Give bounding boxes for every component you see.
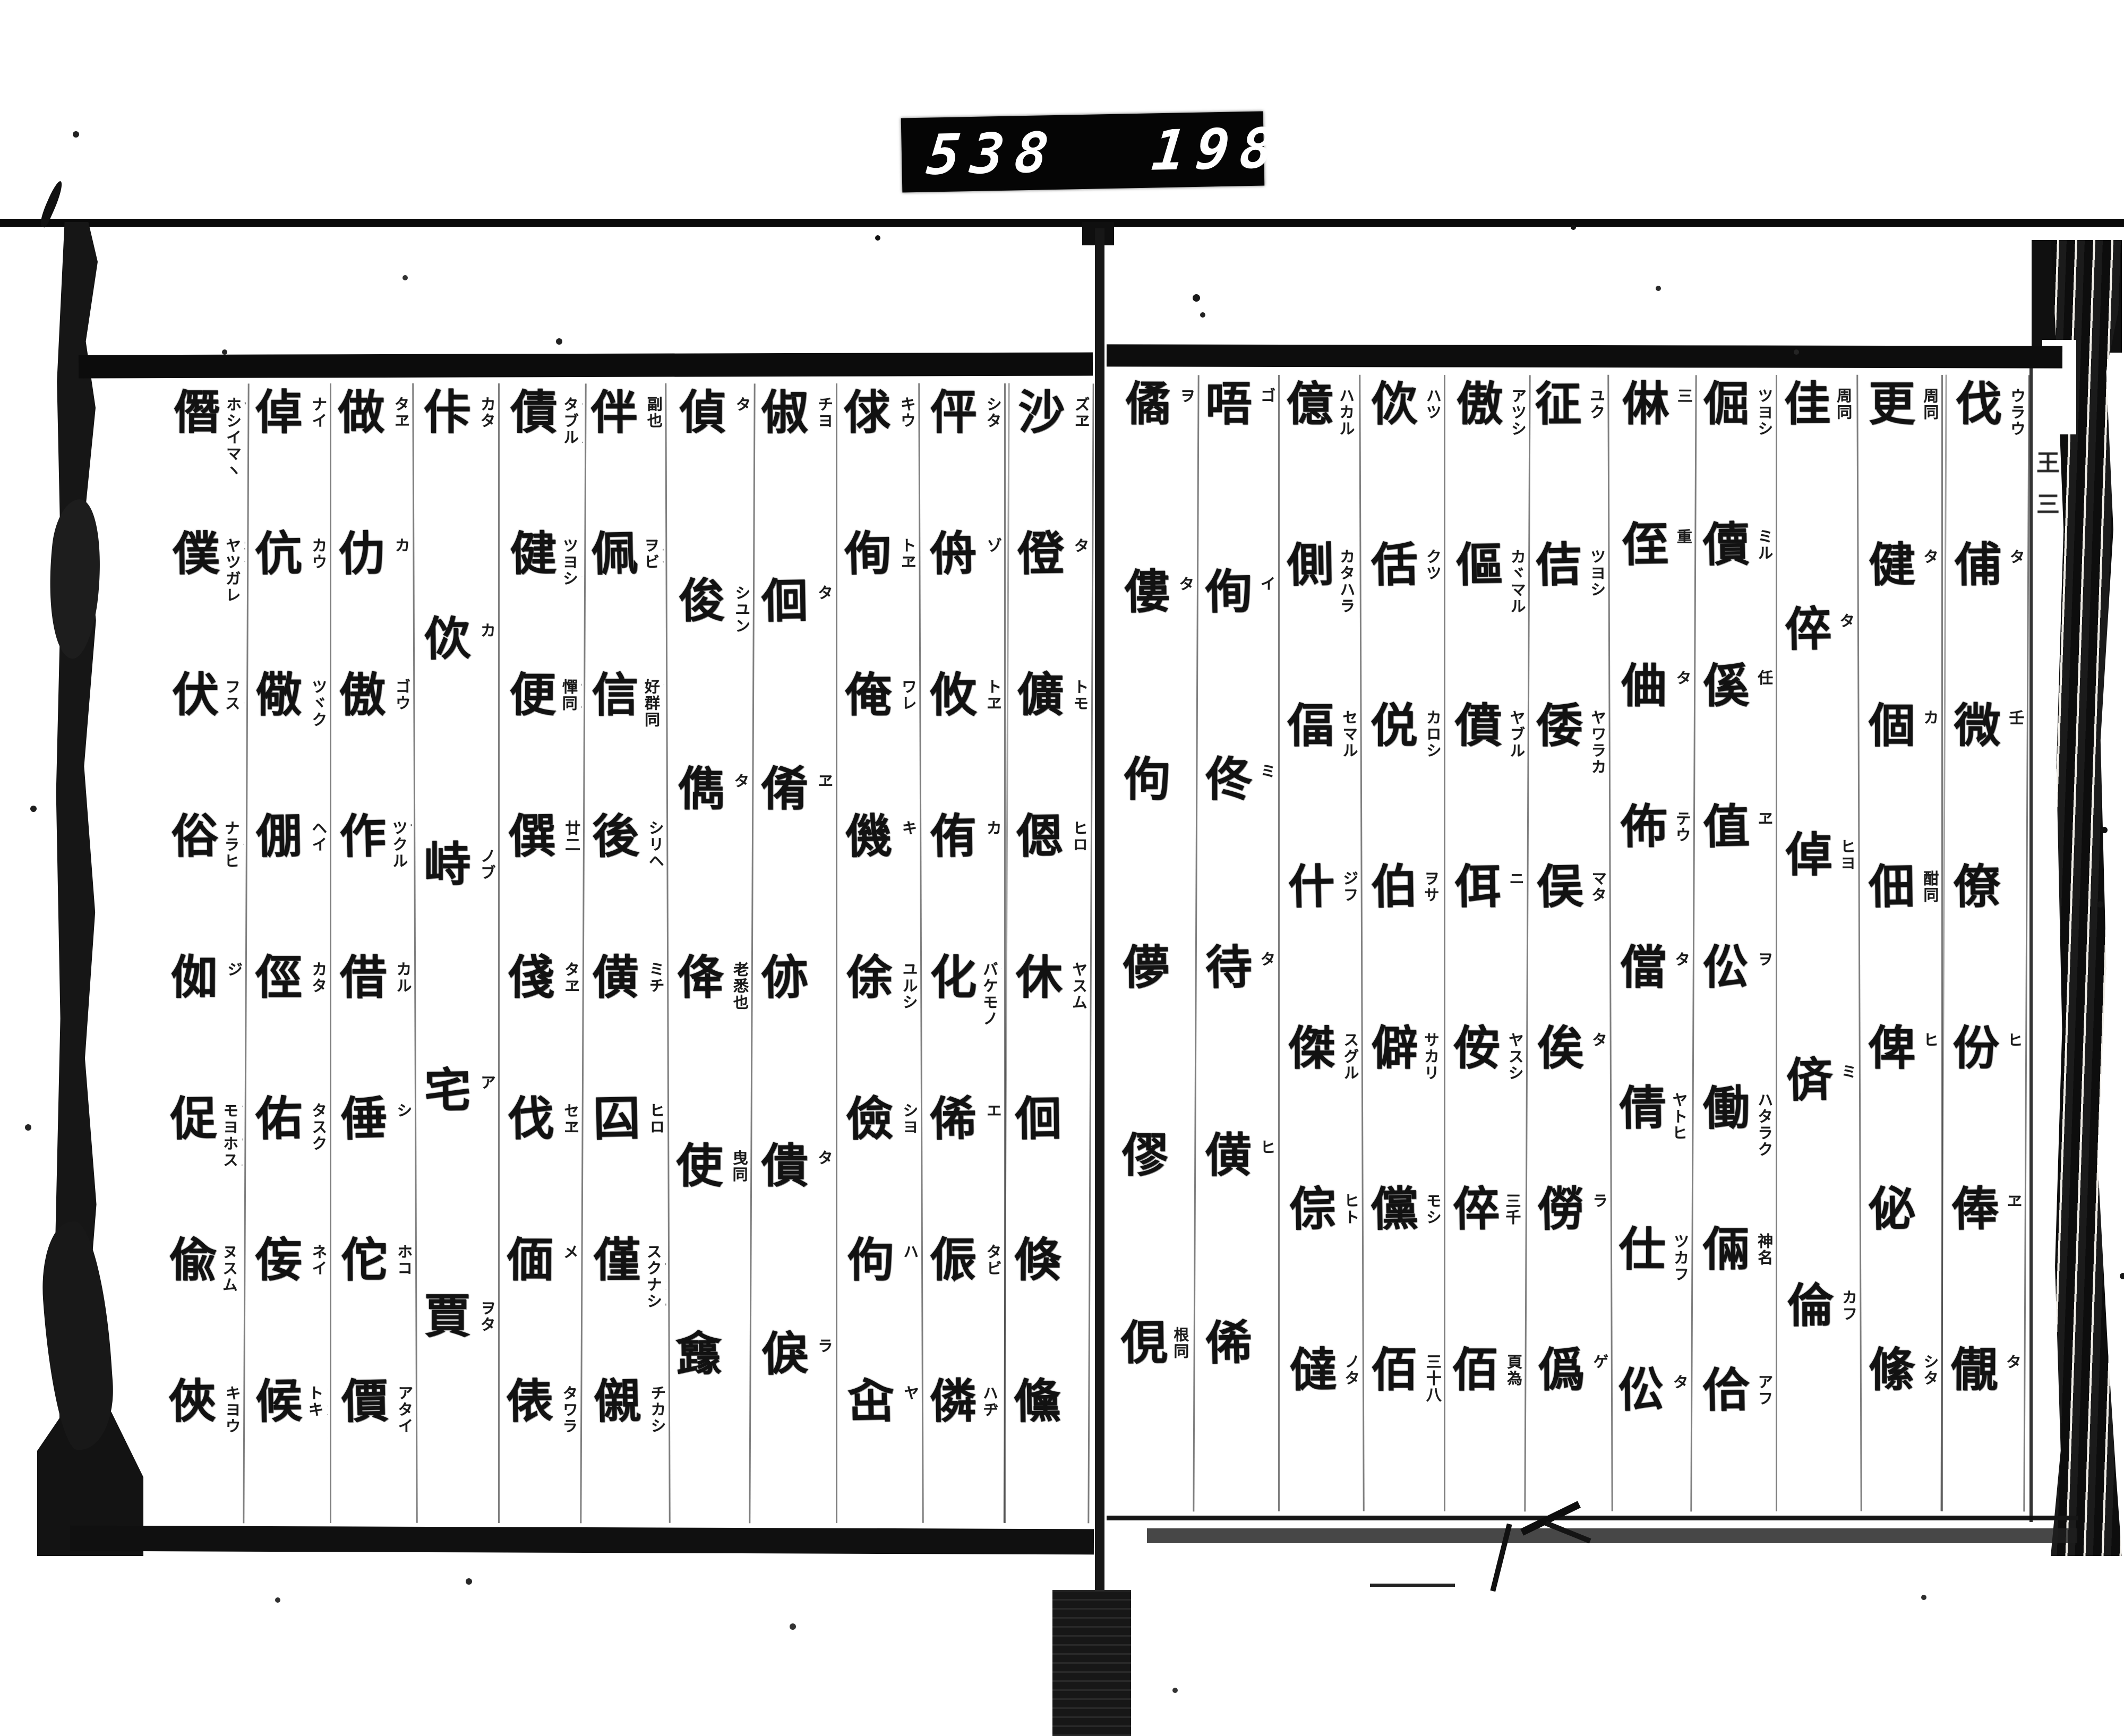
entry-readings: エ [983,1094,1002,1119]
entry-kanji: 佗 [341,1236,388,1284]
right-text-block-border [2029,366,2033,1522]
entry-readings: ヒロ [647,1094,665,1135]
entry-reading: ウラウ [2009,388,2025,437]
entry-kanji: 伻 [930,389,977,437]
dictionary-entry: 儣トモ [1011,670,1089,812]
dictionary-column: 僭センホシイマヽ僕ボクヤツガレ伏フクフス俗ゾクナラヒ侞ジ促ソクツヾマルモヨホス偸… [160,383,249,1524]
entry-reading: タ [816,585,832,601]
entry-reading: シン [661,679,664,728]
dictionary-entry: 侒ヤスシ [1448,1023,1524,1184]
dictionary-entry: 侜ゾ [924,529,1002,670]
dictionary-entry: 倬ナイ [250,388,328,529]
entry-readings: 神名 [1755,1225,1774,1266]
entry-readings: トウヌスム [219,1235,242,1293]
dictionary-entry: 佗ホコ [336,1235,414,1377]
entry-reading: ヒト [1343,1192,1359,1225]
entry-reading: ハイ [661,537,664,570]
entry-reading: ユルシ [901,961,917,1011]
entry-kanji: 債 [511,389,558,437]
microfilm-counter: 538 198. [901,111,1265,192]
entry-reading: カ [1922,709,1938,726]
entry-reading: アツシ [1510,388,1526,437]
entry-readings: ヘイ [309,811,328,853]
entry-kanji: 㑋 [1621,662,1667,709]
entry-reading: 副也 [646,396,662,429]
entry-kanji: 便 [509,671,556,719]
entry-reading: 任 [1757,670,1772,686]
dictionary-entry: 佳子サ周同 [1778,379,1855,605]
entry-readings: シタ [1921,1345,1939,1387]
entry-readings: キヨウ [222,1376,242,1434]
dictionary-entry: 儅タ [1614,943,1690,1084]
right-page-top-border [1107,344,2062,368]
entry-readings: カ [1921,701,1939,726]
entry-readings: ヤ [901,1376,919,1401]
dust-specks [0,0,3,3]
entry-readings: タビ [983,1235,1002,1277]
entry-readings: ヲタ [477,1292,496,1333]
entry-reading: キヨウ [224,1385,241,1434]
entry-kanji: 倆 [1703,1226,1750,1273]
entry-reading: コヽ [1190,1327,1192,1360]
entry-reading: トヱ [985,679,1001,712]
dictionary-entry: 做タヱ [332,388,410,529]
entry-reading: ツヨシ [561,537,578,587]
entry-reading: チヨ [816,396,832,429]
dictionary-entry: 僜タ [1012,529,1090,671]
entry-kanji: 僨 [1455,702,1502,750]
entry-reading: キ [900,820,916,836]
entry-kanji: 偪 [1288,702,1334,750]
bottom-center-tab [1052,1590,1131,1736]
stray-line-fragment [1370,1584,1455,1587]
dictionary-entry: 儭チカシ [589,1376,667,1518]
entry-readings: カウ [309,529,328,570]
entry-reading: ツヨシ [1589,549,1605,598]
entry-readings: 副也 [644,388,663,429]
entry-kanji: 俵 [506,1377,553,1425]
entry-readings: キウ [897,388,916,429]
dictionary-entry: 𫣆ヒロ [1010,811,1089,953]
dictionary-column: 佳子サ周同倅タ倬ヒヨ㑪ミ倫カフ [1775,375,1862,1512]
entry-reading: 子サ [1853,388,1855,421]
entry-readings: シタ [983,388,1002,429]
entry-readings: ヱ [815,764,833,789]
dictionary-entry: 働ハタラク [1698,1083,1774,1224]
entry-reading: アフ [1757,1374,1772,1407]
entry-readings: ハタラク [1755,1083,1774,1158]
entry-kanji: 唔 [1205,380,1252,428]
entry-readings: タヱ [562,953,580,994]
entry-kanji: 僟 [845,812,893,861]
entry-readings: コワシツヨシ [560,529,582,587]
left-page-columns: 沙ズヱ僜タ儣トモ𫣆ヒロ休ヤスム佪倏儵伻シタ侜ゾ攸トヱ侑カ化クワバケモノ俙エ侲タビ… [162,383,1092,1523]
entry-reading: ミ [1259,763,1275,780]
entry-kanji: 伏 [172,671,219,719]
dictionary-entry: 俶チヨ [756,388,834,576]
entry-readings: 周同 [1921,379,1939,421]
entry-readings: ラ [815,1329,833,1354]
entry-readings: ヱ [2004,1184,2023,1209]
entry-readings: キ [898,811,917,836]
entry-reading: ジフ [1342,870,1358,903]
entry-reading: ア [479,1074,495,1091]
entry-reading: ヤブル [1509,709,1525,759]
dictionary-entry: 佪タ [756,576,834,765]
dictionary-entry: 伴副也 [585,388,663,529]
dictionary-entry: 倗ヘイ [250,811,328,953]
dictionary-entry: 伐ウラウ [1949,379,2026,541]
entry-kanji: 僗 [1537,1185,1585,1234]
entry-kanji: 伀 [1703,944,1750,991]
dictionary-entry: 倏 [1009,1235,1087,1377]
entry-kanji: 儁 [678,765,724,813]
dictionary-entry: 什ジフ [1283,862,1359,1023]
entry-readings: タヾルタブル [560,388,583,446]
entry-reading: サ [408,820,412,869]
dictionary-entry: 佩ハイヲビ [586,529,664,671]
entry-reading: ノブ [479,848,495,881]
dictionary-entry: 伏フクフス [166,670,244,812]
entry-readings: ジフ [1340,862,1359,903]
dictionary-entry: 伀タ [1612,1365,1689,1506]
entry-readings: ヒ [1921,1023,1939,1048]
entry-reading: ハヂ [981,1385,997,1418]
entry-reading: 好群同 [643,679,659,728]
entry-readings: ジ [225,953,243,978]
entry-kanji: 佧 [424,389,471,437]
entry-kanji: 借 [340,954,387,1002]
entry-kanji: 佝 [846,1236,893,1284]
dictionary-entry: 俾ヒ [1863,1023,1939,1184]
dictionary-entry: 侞ジ [165,953,243,1094]
dictionary-entry: 微壬 [1948,701,2025,862]
dictionary-column: 俶チヨ佪タ倄ヱ㑊僓タ㑦ラ [753,383,837,1523]
entry-reading: ヒ [1922,1032,1938,1048]
entry-kanji: 傲 [339,671,386,719]
dictionary-entry: 俌タ [1949,540,2025,702]
entry-readings: トヱ [897,529,916,570]
entry-reading: ウカヾフ [324,1385,328,1451]
entry-kanji: 倅 [1453,1185,1500,1233]
dictionary-entry: 佧カタ [419,388,496,614]
entry-kanji: 佳 [1784,380,1830,428]
entry-reading: ヒ [1259,1139,1275,1156]
dictionary-entry: 健コワシツヨシ [504,529,583,671]
entry-readings: ホコ [394,1235,413,1277]
entry-reading: ヒ [2006,1032,2022,1048]
dictionary-entry: 僇 [1116,1130,1193,1318]
entry-reading: カフ [1840,1289,1856,1322]
entry-kanji: 僜 [1017,529,1065,578]
entry-reading: スグル [1342,1031,1358,1081]
entry-kanji: 僎 [509,812,556,860]
entry-readings: ツラクヤトヒ [1669,1083,1690,1141]
dictionary-entry: 僪ヲ [1119,379,1196,567]
entry-kanji: 㒴 [847,1377,895,1426]
entry-readings: カ [983,811,1002,836]
entry-readings: ヘキサカリ [1421,1023,1442,1081]
dictionary-entry: 倧ヒト [1284,1184,1360,1345]
dictionary-entry: 儥ミル [1698,520,1774,661]
right-page-curled-edge [2051,240,2122,1556]
dictionary-column: 傲アツシ傴カヾマル僨ヤブル佴ニ侒ヤスシ倅モチ三千佰頁為 [1443,375,1531,1512]
dictionary-column: 伻シタ侜ゾ攸トヱ侑カ化クワバケモノ俙エ侲タビ僯リンハヂ [921,383,1006,1523]
dictionary-entry: 伀ヲ [1698,943,1774,1083]
dictionary-entry: 倩ツラクヤトヒ [1613,1083,1690,1225]
dictionary-entry: 偪セマル [1282,701,1359,862]
entry-kanji: 仂 [338,529,386,578]
entry-reading: トモ [1072,679,1088,712]
entry-kanji: 偵 [679,389,726,437]
dictionary-column: 㑣三侄重㑋タ佈テウ儅タ倩ツラクヤトヒ仕ツカフ伀タ [1609,375,1697,1512]
entry-readings: タ [1257,943,1276,968]
entry-reading: タ [2005,1354,2020,1370]
dictionary-entry: 佰三十八 [1366,1345,1442,1506]
entry-reading: クワ [999,961,1003,1027]
entry-kanji: 俠 [169,1377,216,1425]
entry-reading: タビ [985,1244,1001,1277]
dictionary-entry: 候サブラフウカヾフトキ [250,1376,328,1518]
entry-readings: トモ [1070,670,1089,712]
dictionary-entry: 佶ツヨシ [1530,540,1607,702]
dictionary-entry: 伐セヱ [502,1094,580,1236]
entry-readings: ゴウ [392,670,410,712]
dictionary-entry: 個カ [1863,701,1939,862]
entry-reading: タ [1591,1031,1607,1048]
entry-kanji: 倩 [1619,1084,1666,1133]
dictionary-entry: 㑋タ [1615,661,1692,802]
entry-readings: クツ [1423,540,1442,581]
dictionary-entry: 儵 [1008,1376,1086,1518]
entry-readings: 廿二 [562,811,581,853]
entry-kanji: 㒪 [675,1330,722,1379]
entry-kanji: 佃 [1868,863,1916,911]
entry-readings: ユク [1587,379,1606,421]
entry-kanji: 㑊 [761,953,809,1002]
entry-kanji: 側 [1287,541,1334,589]
entry-readings: ヤブル [1507,701,1526,759]
entry-readings: チカシ [648,1376,667,1434]
entry-reading: ゾク [241,820,244,869]
dictionary-entry: 佪 [1009,1094,1087,1236]
entry-readings: 酣同 [1921,862,1939,903]
left-margin-stain [41,497,108,661]
entry-reading: イ [1259,576,1275,592]
entry-kanji: 俸 [1951,1185,1999,1233]
entry-kanji: 休 [1016,954,1063,1002]
entry-reading: ハツ [1425,388,1441,421]
entry-kanji: 伀 [1617,1366,1665,1414]
entry-reading: モシ [1425,1193,1441,1226]
entry-readings: 曳同 [730,1141,748,1183]
entry-kanji: 僂 [1124,568,1171,616]
entry-kanji: 倫 [1787,1282,1834,1330]
entry-readings: ゴ [1257,379,1276,404]
entry-readings: ノブ [477,840,496,881]
entry-reading: ワヅカニ [663,1244,666,1310]
dictionary-column: 僪ヲ僂タ佝儚僇俔コヽ根同 [1111,375,1199,1512]
entry-kanji: 侻 [1371,702,1418,750]
dictionary-entry: 傴カヾマル [1450,540,1526,702]
entry-kanji: 俾 [1869,1024,1915,1072]
entry-reading: タ [1838,613,1854,629]
entry-kanji: 僚 [1953,863,2000,911]
dictionary-entry: 宅ア [419,1066,496,1292]
entry-kanji: 侲 [930,1236,977,1284]
entry-readings: カロシ [1423,701,1442,759]
entry-reading: フク [241,679,244,712]
dictionary-entry: 侲タビ [924,1235,1002,1376]
entry-kanji: 伉 [255,529,303,578]
dictionary-entry: 傑スグル [1283,1023,1360,1184]
entry-kanji: 俶 [761,389,808,437]
entry-reading: 周同 [1922,388,1938,421]
dictionary-entry: 億イヨクハカル [1281,379,1357,541]
entry-kanji: 僙 [1205,1132,1252,1179]
entry-readings: ノタ [1342,1345,1360,1387]
dictionary-entry: 僙ミチ [587,953,665,1094]
dictionary-entry: 㑪ミ [1780,1055,1857,1281]
entry-reading: メ [562,1244,578,1260]
dictionary-entry: 佴ニ [1449,862,1525,1023]
entry-reading: 酣同 [1922,870,1938,903]
entry-kanji: 僓 [761,1142,808,1190]
entry-kanji: 儥 [1702,520,1750,569]
fold-mark: 三 [2036,492,2062,515]
entry-reading: ヤスシ [1507,1032,1523,1081]
dictionary-entry: 偭メ [501,1235,579,1377]
entry-reading: ヘキ [1440,1032,1442,1081]
entry-readings: カル [393,953,412,994]
dictionary-entry: 僙ヒ [1200,1131,1276,1319]
dictionary-entry: 僨ヤブル [1449,701,1526,862]
entry-reading: タ [2008,549,2024,565]
entry-reading: アタイ [396,1385,412,1434]
entry-kanji: 候 [255,1377,303,1425]
entry-readings: シユン [732,576,751,634]
entry-reading: セヱ [562,1102,578,1135]
entry-readings [1275,1318,1276,1327]
entry-readings: ハツ [1423,379,1442,421]
dictionary-entry: 傲ゴウ [333,670,412,812]
entry-readings: ソクツヾマルモヨホス [220,1094,242,1168]
entry-reading: ツラク [1688,1092,1690,1142]
dictionary-entry: 僎廿二 [503,811,581,953]
dictionary-entry: 㒴ヤ [842,1376,920,1518]
entry-readings: タ [1670,1365,1689,1390]
entry-kanji: 儅 [1620,944,1666,991]
entry-kanji: 侒 [1453,1024,1500,1072]
entry-reading: タ [1259,951,1275,968]
entry-readings: ヤワラカ [1588,701,1607,775]
dictionary-entry: 俴タヱ [502,953,580,1094]
fold-mark: 王 [2036,450,2062,474]
dictionary-entry: 囜ヒロ [588,1094,666,1236]
entry-kanji: 做 [338,389,384,437]
entry-reading: ナラヒ [223,820,239,869]
dictionary-entry: 促ソクツヾマルモヨホス [165,1094,243,1236]
right-page-columns: 伐ウラウ俌タ微壬僚份ヒ俸ヱ儬タ更周同健タ個カ佃酣同俾ヒ佖絛シタ佳子サ周同倅タ倬ヒ… [1114,375,2027,1511]
dictionary-entry: 峙ノブ [419,840,496,1066]
entry-readings: ラ [1590,1184,1608,1209]
entry-kanji: 佈 [1620,802,1667,851]
entry-readings: イ [1257,567,1276,592]
entry-readings: ヒヨ [1837,830,1856,871]
entry-readings: ユルシ [899,953,918,1011]
entry-kanji: 倕 [340,1094,388,1143]
dictionary-entry: 儁タ [672,764,750,953]
entry-reading: タワラ [561,1385,578,1434]
entry-kanji: 僇 [1121,1131,1168,1179]
entry-reading: ナニ [578,679,581,712]
entry-readings: ネイ [309,1235,328,1277]
entry-readings [1192,943,1193,951]
entry-kanji: 俟 [1537,1024,1584,1072]
entry-readings: モチ三千 [1503,1184,1523,1226]
entry-kanji: 傲 [1457,380,1503,428]
entry-reading: リン [999,1385,1003,1418]
entry-reading: シリヘ [647,820,663,869]
entry-reading: タ [1922,549,1938,565]
dictionary-entry: 儬タ [1945,1345,2022,1507]
dictionary-entry: 儻モシ [1366,1184,1442,1345]
entry-kanji: 什 [1288,863,1335,912]
entry-kanji: 㑦 [761,1330,809,1379]
dictionary-entry: 偵タ [673,388,751,576]
dictionary-column: 做タヱ仂カ傲ゴウ作サツクル借カル倕シ佗ホコ價アタイ [329,383,417,1524]
entry-reading: カル [395,961,410,994]
entry-reading: フス [224,679,239,712]
entry-kanji: 偭 [507,1236,554,1284]
dictionary-entry: 份ヒ [1947,1023,2023,1184]
entry-reading: ゲ [1592,1354,1608,1370]
dictionary-column: 更周同健タ個カ佃酣同俾ヒ佖絛シタ [1860,375,1943,1511]
dictionary-entry: 侑カ [924,811,1002,953]
entry-readings: ゾ [983,529,1002,554]
entry-readings: ツヨシ [1588,540,1607,598]
dictionary-entry: 侻カロシ [1366,701,1442,862]
entry-kanji: 俔 [1120,1319,1168,1367]
entry-reading: ツヾク [311,679,327,728]
dictionary-entry: 㑦ラ [756,1329,834,1518]
entry-reading: ツヨシ [1757,388,1772,437]
dictionary-entry: 待タ [1200,943,1276,1131]
dictionary-entry: 佖 [1863,1184,1939,1345]
entry-reading: 三千 [1504,1193,1520,1226]
entry-readings: ア [477,1066,496,1091]
entry-readings: スグル [1341,1023,1360,1081]
dictionary-entry: 唔ゴ [1200,379,1276,567]
entry-reading: ミ [1839,1064,1855,1080]
entry-readings: カタ [309,953,328,994]
dictionary-column: 沙ズヱ僜タ儣トモ𫣆ヒロ休ヤスム佪倏儵 [1004,383,1094,1524]
entry-kanji: 佽 [424,614,472,663]
dictionary-entry: 絛シタ [1863,1345,1939,1506]
entry-kanji: 儻 [1371,1185,1418,1233]
entry-kanji: 健 [510,529,557,578]
dictionary-entry: 僅キンワヅカニスクナシ [588,1235,666,1377]
entry-readings: トヱ [983,670,1002,712]
entry-kanji: 侄 [1621,521,1668,569]
dictionary-column: 俅キウ侚トヱ俺ワレ僟キ俆ユルシ儉シヨ佝ハ㒴ヤ [835,383,923,1524]
entry-kanji: 俴 [508,954,555,1002]
dictionary-entry: 作サツクル [334,811,412,953]
dictionary-entry: 仕ツカフ [1613,1224,1689,1365]
entry-kanji: 個 [1869,702,1915,750]
entry-reading: バケモノ [981,961,997,1027]
entry-kanji: 伐 [507,1094,554,1143]
